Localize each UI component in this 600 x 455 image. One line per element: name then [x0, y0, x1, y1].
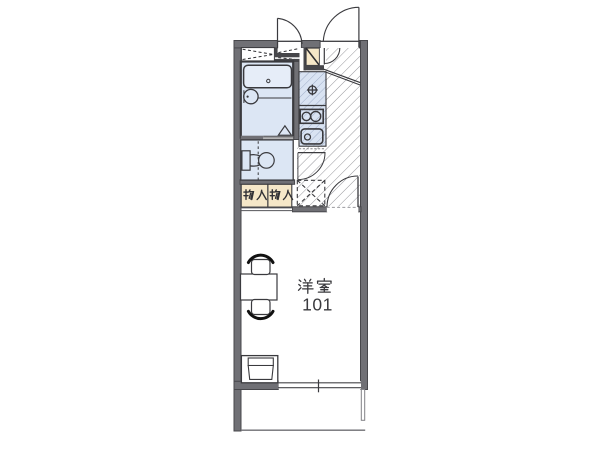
svg-text:101: 101	[302, 295, 333, 315]
